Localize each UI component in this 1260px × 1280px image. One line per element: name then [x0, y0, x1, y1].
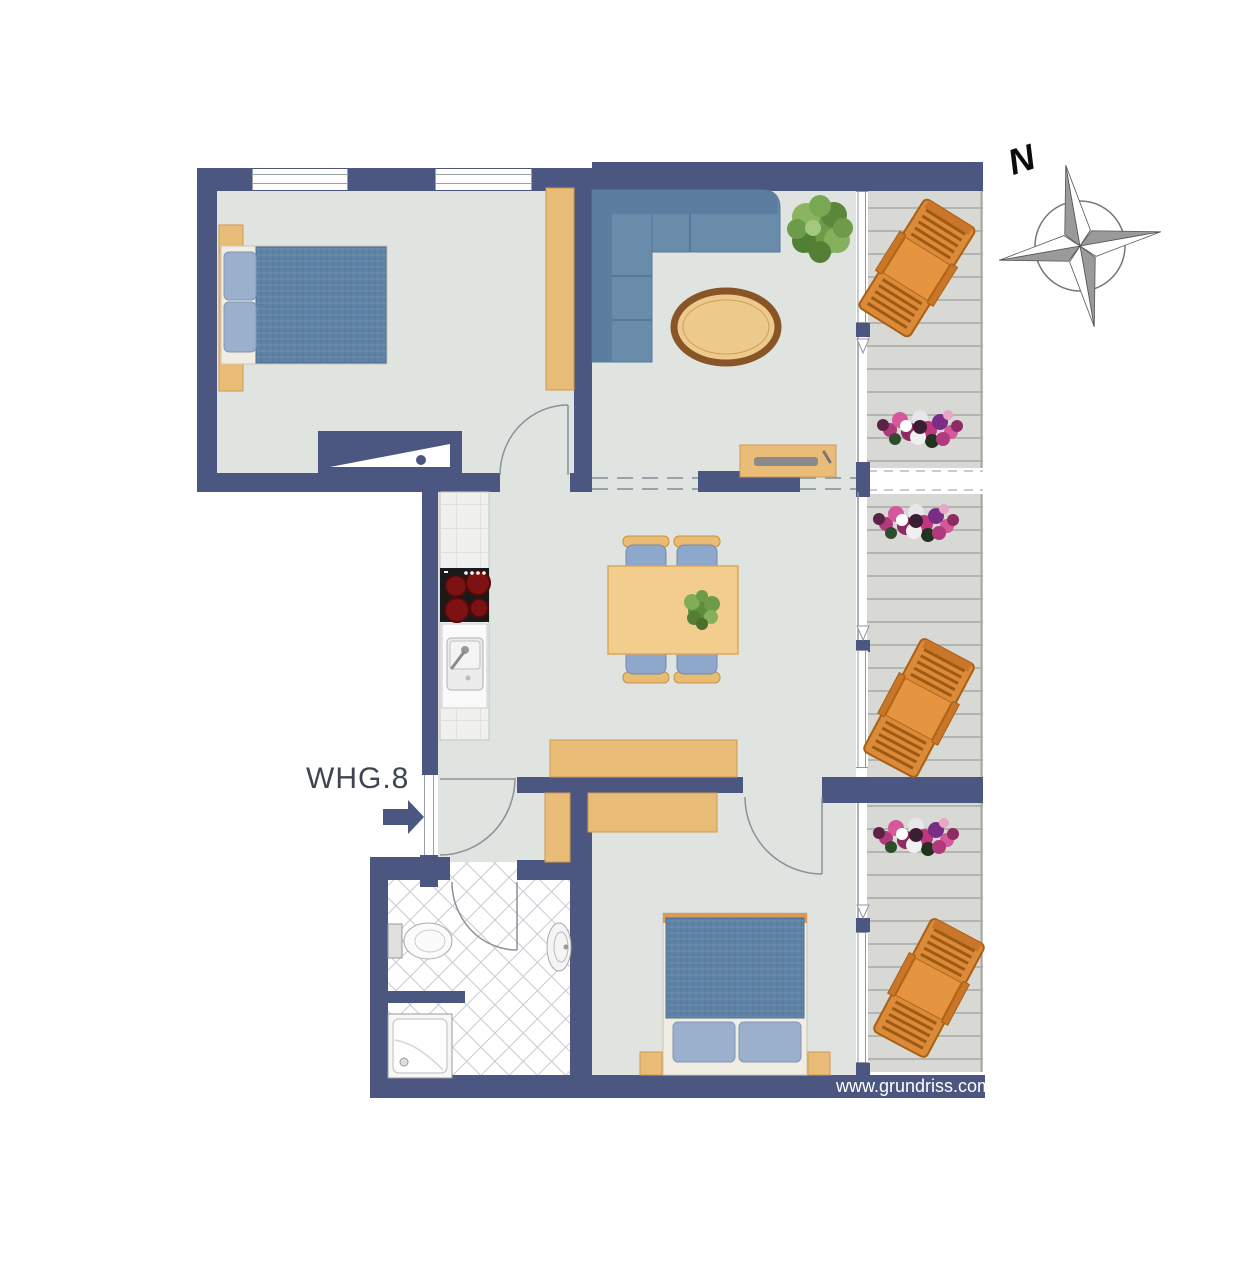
coffee-table	[674, 291, 778, 363]
hallway-furniture	[545, 793, 570, 862]
sideboard	[550, 740, 737, 777]
pillow	[224, 302, 256, 352]
wall-bathroom-stub	[370, 991, 465, 1003]
wash-basin	[547, 923, 571, 971]
wardrobe	[546, 188, 574, 390]
desk	[588, 793, 717, 832]
apartment-number-label: WHG.8	[306, 762, 409, 795]
hall-cabinet	[545, 793, 570, 862]
wall-bedroom1-bottom	[197, 473, 500, 492]
wall-top-living-balcony	[592, 162, 983, 191]
balcony-divider	[868, 468, 983, 494]
shower	[388, 1014, 452, 1078]
compass-rose-icon: N	[979, 116, 1175, 341]
nightstand	[808, 1052, 830, 1075]
pillow	[224, 252, 256, 300]
tv-sideboard	[740, 445, 836, 477]
nightstand	[640, 1052, 662, 1075]
watermark-label: www.grundriss.com	[835, 1076, 992, 1096]
cooktop	[440, 568, 490, 622]
chimney-flue-symbol	[318, 431, 462, 474]
floor-plan-drawing: N WHG.8 www.grundriss.com	[0, 0, 1260, 1280]
bed-blanket	[666, 918, 804, 1018]
french-door-bedroom2	[856, 932, 868, 1063]
pillow	[739, 1022, 801, 1062]
entrance-arrow-icon	[383, 800, 424, 834]
wall-dining-bedroom2	[517, 777, 743, 793]
wall-bathroom-left	[370, 857, 388, 1098]
wall-bedroom1-living	[574, 188, 592, 473]
kitchen-sink	[442, 624, 487, 708]
wall-hallway-bottom	[517, 860, 572, 880]
kitchen	[440, 492, 490, 740]
dining-table	[608, 566, 738, 654]
window-bedroom1-left	[252, 169, 348, 190]
wall-balcony-cross	[822, 777, 983, 803]
window-bedroom1-right	[435, 169, 532, 190]
compass-north-label: N	[1003, 136, 1041, 183]
floor-plan-page: N WHG.8 www.grundriss.com	[0, 0, 1260, 1280]
wall-left	[197, 168, 217, 492]
pillow	[673, 1022, 735, 1062]
bed-blanket	[256, 247, 386, 363]
toilet	[388, 923, 452, 959]
wall-shaft-dot	[389, 885, 400, 896]
wall-corridor-left	[422, 492, 438, 775]
